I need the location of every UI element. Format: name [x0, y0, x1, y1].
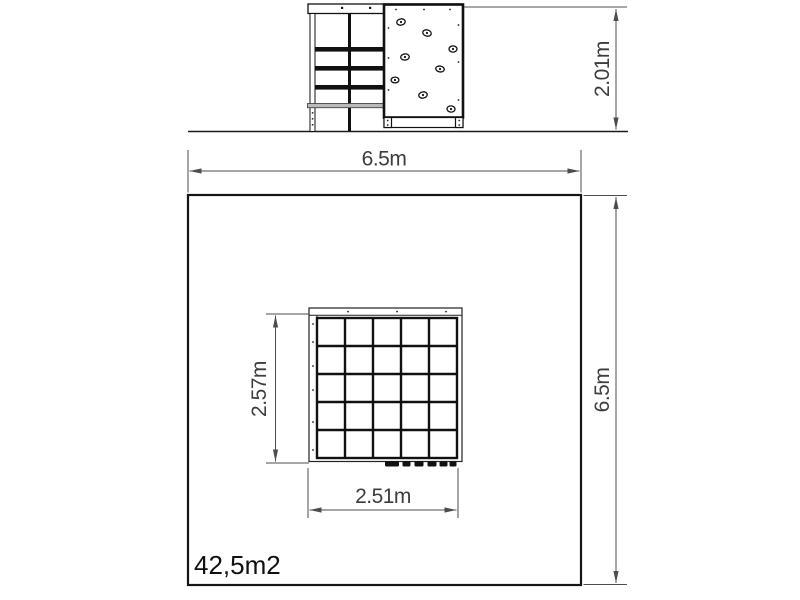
elevation-view: 2.01m	[188, 4, 628, 132]
site-width-label: 6.5m	[362, 148, 407, 171]
equipment-depth-dimension: 2.57m	[248, 314, 309, 463]
equipment-outline	[309, 308, 462, 462]
plan-equipment	[309, 308, 462, 467]
site-width-dimension: 6.5m	[188, 148, 581, 193]
equipment-width-label: 2.51m	[355, 485, 411, 508]
plan-view: 42,5m2	[188, 148, 627, 586]
equipment-depth-label: 2.57m	[248, 361, 271, 417]
area-label: 42,5m2	[194, 550, 281, 580]
climbing-rails	[308, 47, 385, 108]
elevation-height-dimension: 2.01m	[464, 7, 627, 130]
climbing-wall-panel	[384, 5, 463, 128]
site-depth-dimension: 6.5m	[584, 196, 628, 585]
equipment-width-dimension: 2.51m	[308, 468, 458, 518]
gray-rail	[308, 104, 385, 108]
climbing-holds-plan	[385, 461, 457, 467]
technical-drawing-page: 2.01m 42,5m2	[0, 0, 800, 600]
site-depth-label: 6.5m	[591, 368, 614, 413]
elevation-height-label: 2.01m	[591, 41, 614, 97]
left-post	[310, 14, 315, 132]
panel-bottom-rail	[384, 118, 463, 128]
playground-technical-drawing: 2.01m 42,5m2	[0, 0, 800, 600]
